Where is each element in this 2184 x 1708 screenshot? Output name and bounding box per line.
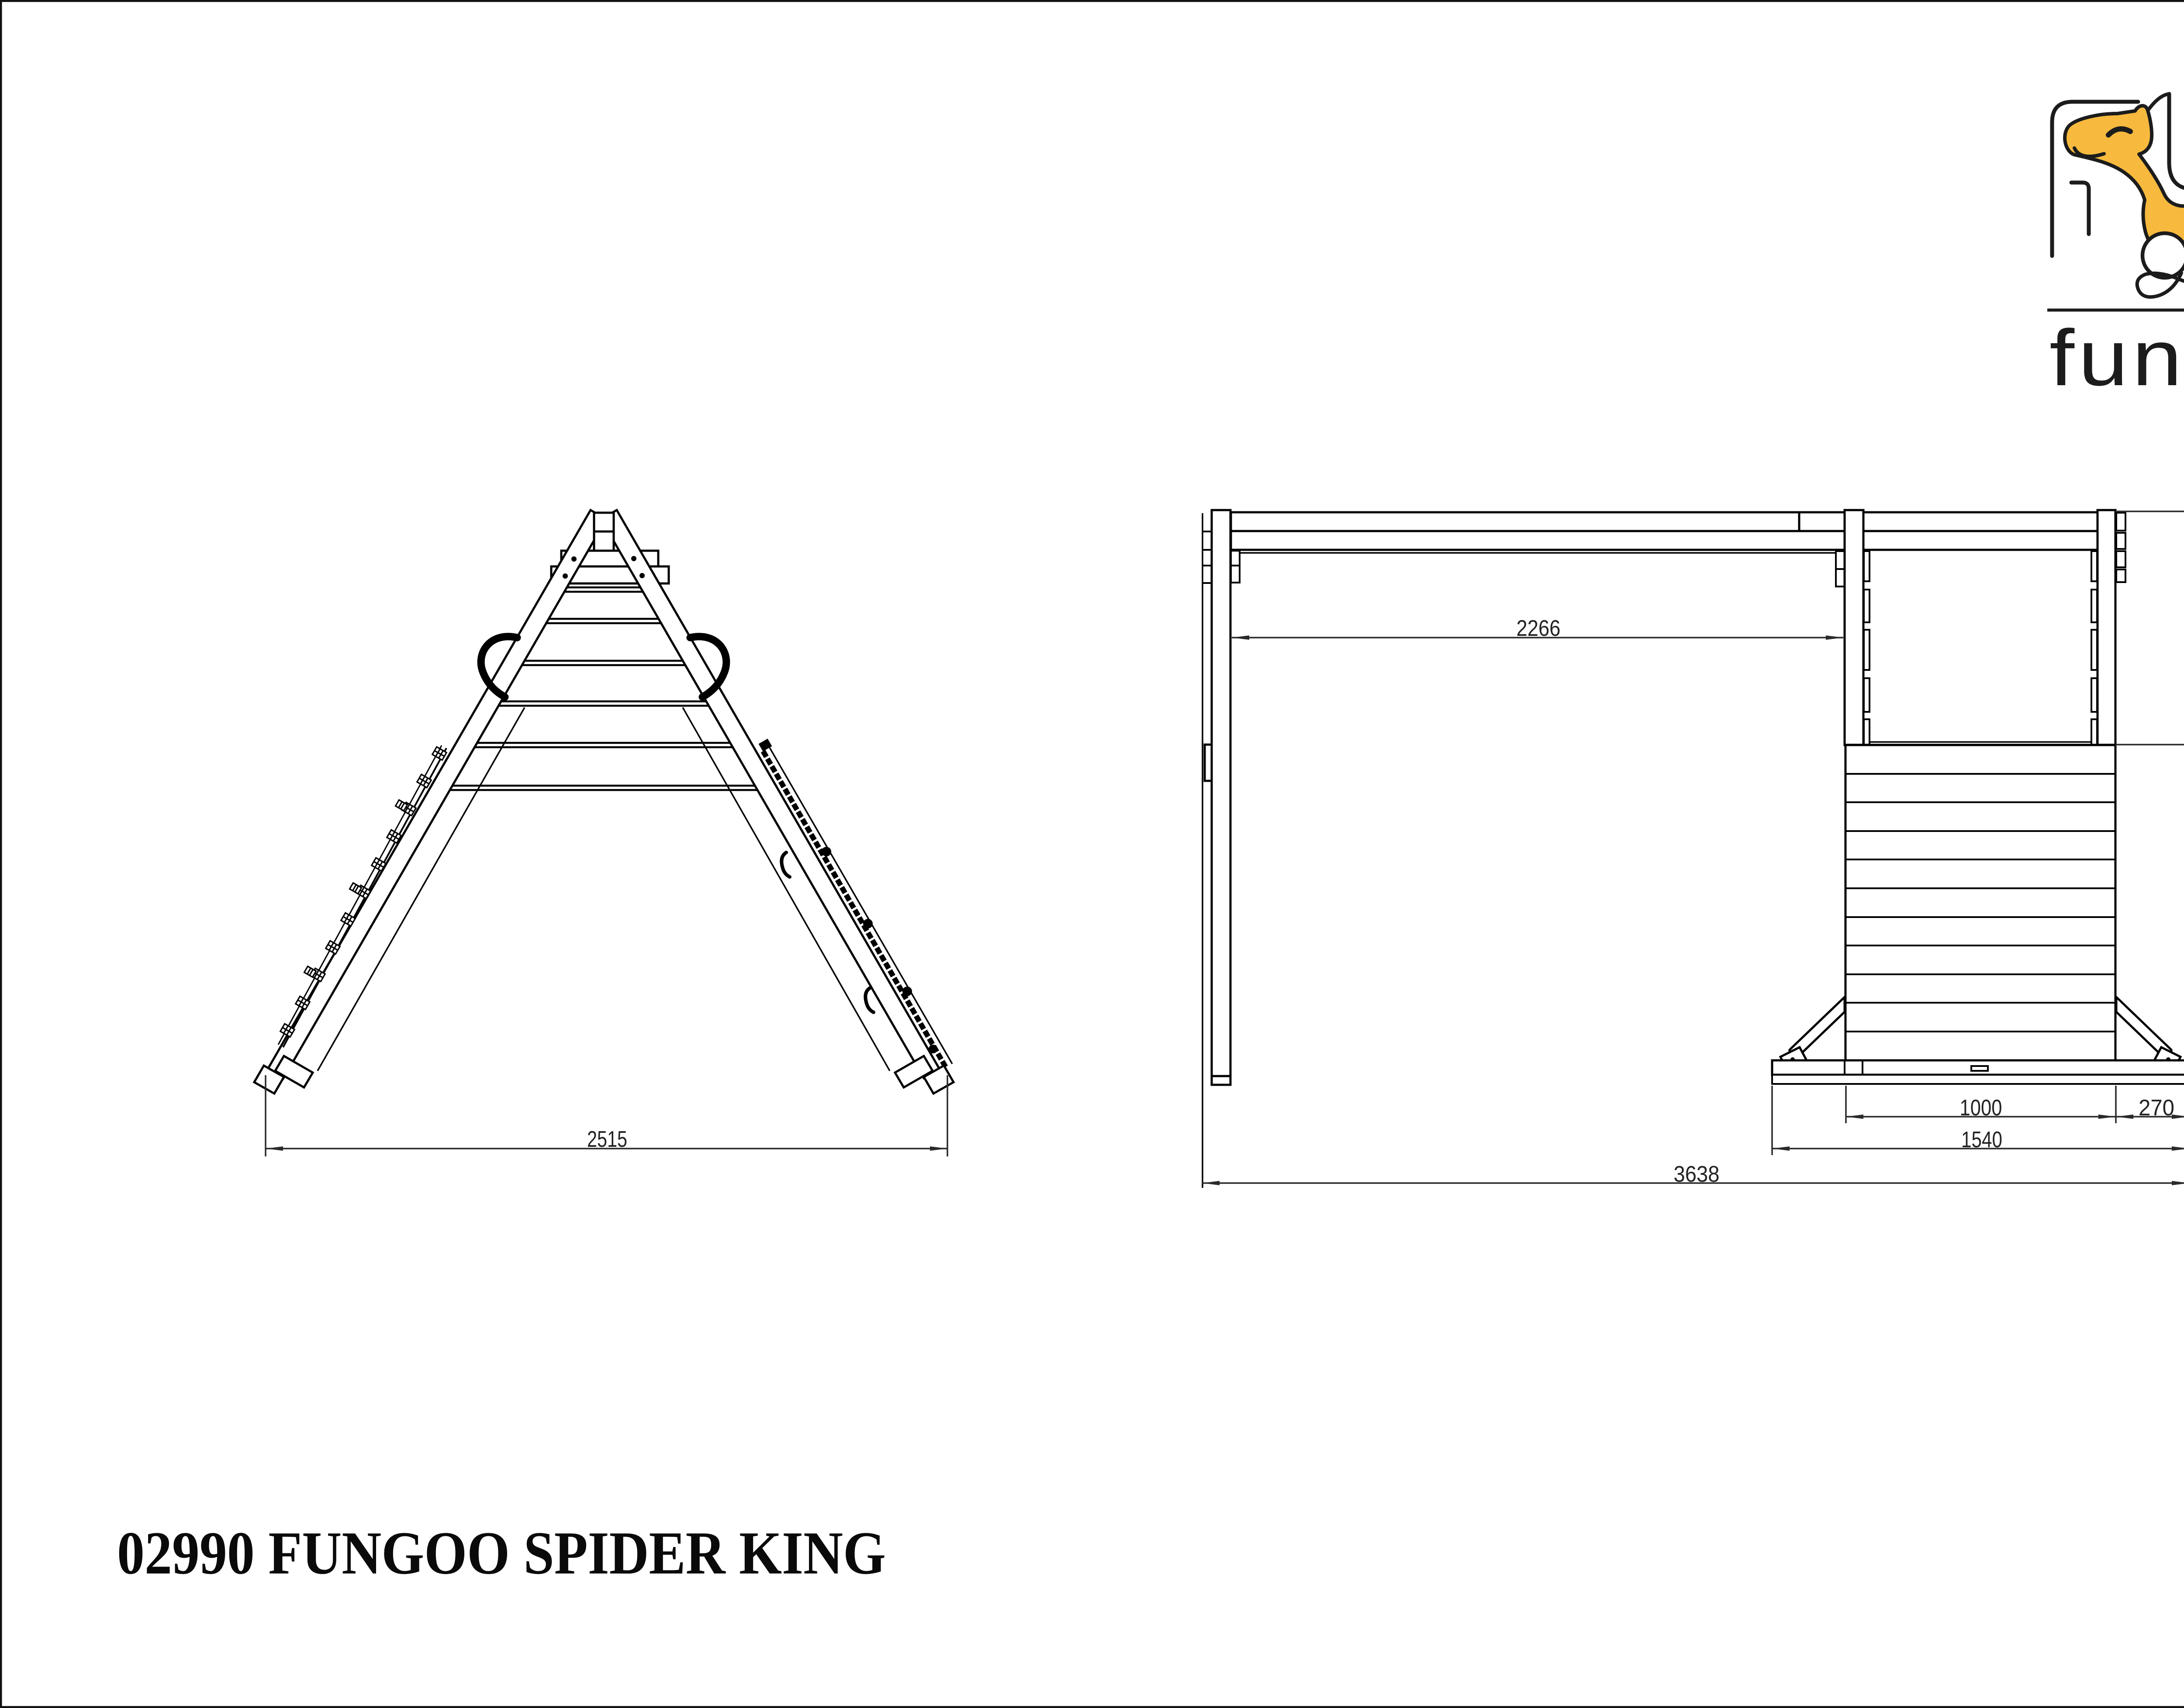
svg-text:02990 FUNGOO SPIDER KING: 02990 FUNGOO SPIDER KING xyxy=(117,1519,886,1587)
svg-text:3638: 3638 xyxy=(1674,1162,1720,1187)
svg-text:2515: 2515 xyxy=(587,1127,627,1152)
svg-text:1000: 1000 xyxy=(1960,1095,2002,1121)
svg-text:1540: 1540 xyxy=(1961,1127,2002,1152)
svg-text:270: 270 xyxy=(2139,1095,2174,1121)
svg-text:2266: 2266 xyxy=(1517,616,1561,641)
svg-text:fungoo: fungoo xyxy=(2049,313,2184,402)
